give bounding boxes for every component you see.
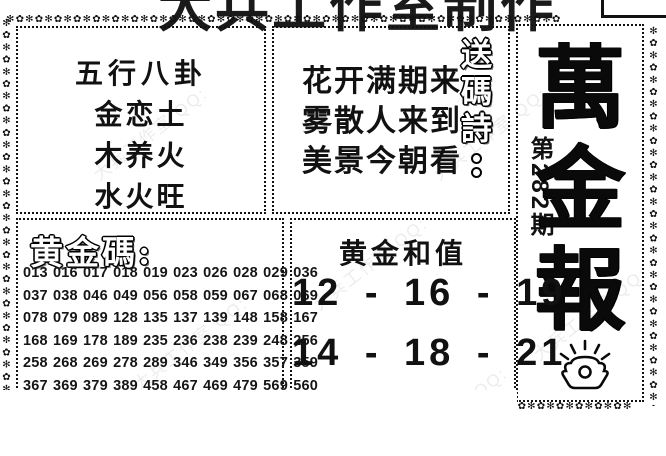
- golden-sum-line: 12 - 16 - 19: [292, 272, 514, 315]
- golden-sum-line: 14 - 18 - 21: [292, 332, 514, 375]
- colon-dot: [471, 153, 482, 164]
- five-elements-line: 木养火: [18, 135, 264, 176]
- five-elements-line: 金恋土: [18, 94, 264, 135]
- poem-lines: 花开满期来 雾散人来到 美景今朝看: [302, 62, 462, 182]
- five-elements-line: 水火旺: [18, 176, 264, 217]
- poem-line: 花开满期来: [302, 62, 462, 102]
- codes-row: 078 079 089 128 135 137 139 148 158 167: [23, 307, 279, 330]
- golden-sum-title: 黄金和值: [292, 232, 514, 272]
- colon-dot: [471, 167, 482, 178]
- poem-colon: [471, 150, 482, 181]
- codes-row: 258 268 269 278 289 346 349 356 357 359: [23, 352, 279, 375]
- masthead-char: 金: [518, 139, 642, 240]
- five-elements-box: 五行八卦 金恋土 木养火 水火旺: [16, 26, 266, 214]
- codes-row: 013 016 017 018 019 023 026 028 029 036: [23, 262, 279, 285]
- codes-row: 037 038 046 049 056 058 059 067 068 069: [23, 285, 279, 308]
- poem-line: 雾散人来到: [302, 102, 462, 142]
- border-left-ornament: ✻✿✻✿✻✿✻✿✻✿✻✿✻✿✻✿✻✿✻✿✻✿✻✿✻✿✻✿✻✿✻✿✻✿✻: [1, 18, 11, 410]
- border-right-ornament: ✻✿✻✿✻✿✻✿✻✿✻✿✻✿✻✿✻✿✻✿✻✿✻✿✻✿✻✿✻✿✻✿✻✿✻: [648, 26, 658, 406]
- scan-cutoff-area: [0, 416, 666, 456]
- five-elements-lines: 金恋土 木养火 水火旺: [18, 94, 264, 217]
- poem-line: 美景今朝看: [302, 142, 462, 182]
- masthead-char: 萬: [518, 38, 642, 139]
- five-elements-title: 五行八卦: [18, 52, 264, 92]
- codes-row: 168 169 178 189 235 236 238 239 248 256: [23, 330, 279, 353]
- golden-codes-grid: 013 016 017 018 019 023 026 028 029 036 …: [23, 262, 279, 398]
- newspaper-page: 大兵工作室 QQ: 大兵工作室 QQ: 大兵工作室 QQ: 大兵工作室 QQ: …: [0, 0, 666, 456]
- border-bottom-ornament: ✻✿✻✿✻✿✻✿✻✿✻✿✻: [508, 402, 650, 412]
- code-poem-box: 花开满期来 雾散人来到 美景今朝看 送碼詩: [272, 26, 510, 214]
